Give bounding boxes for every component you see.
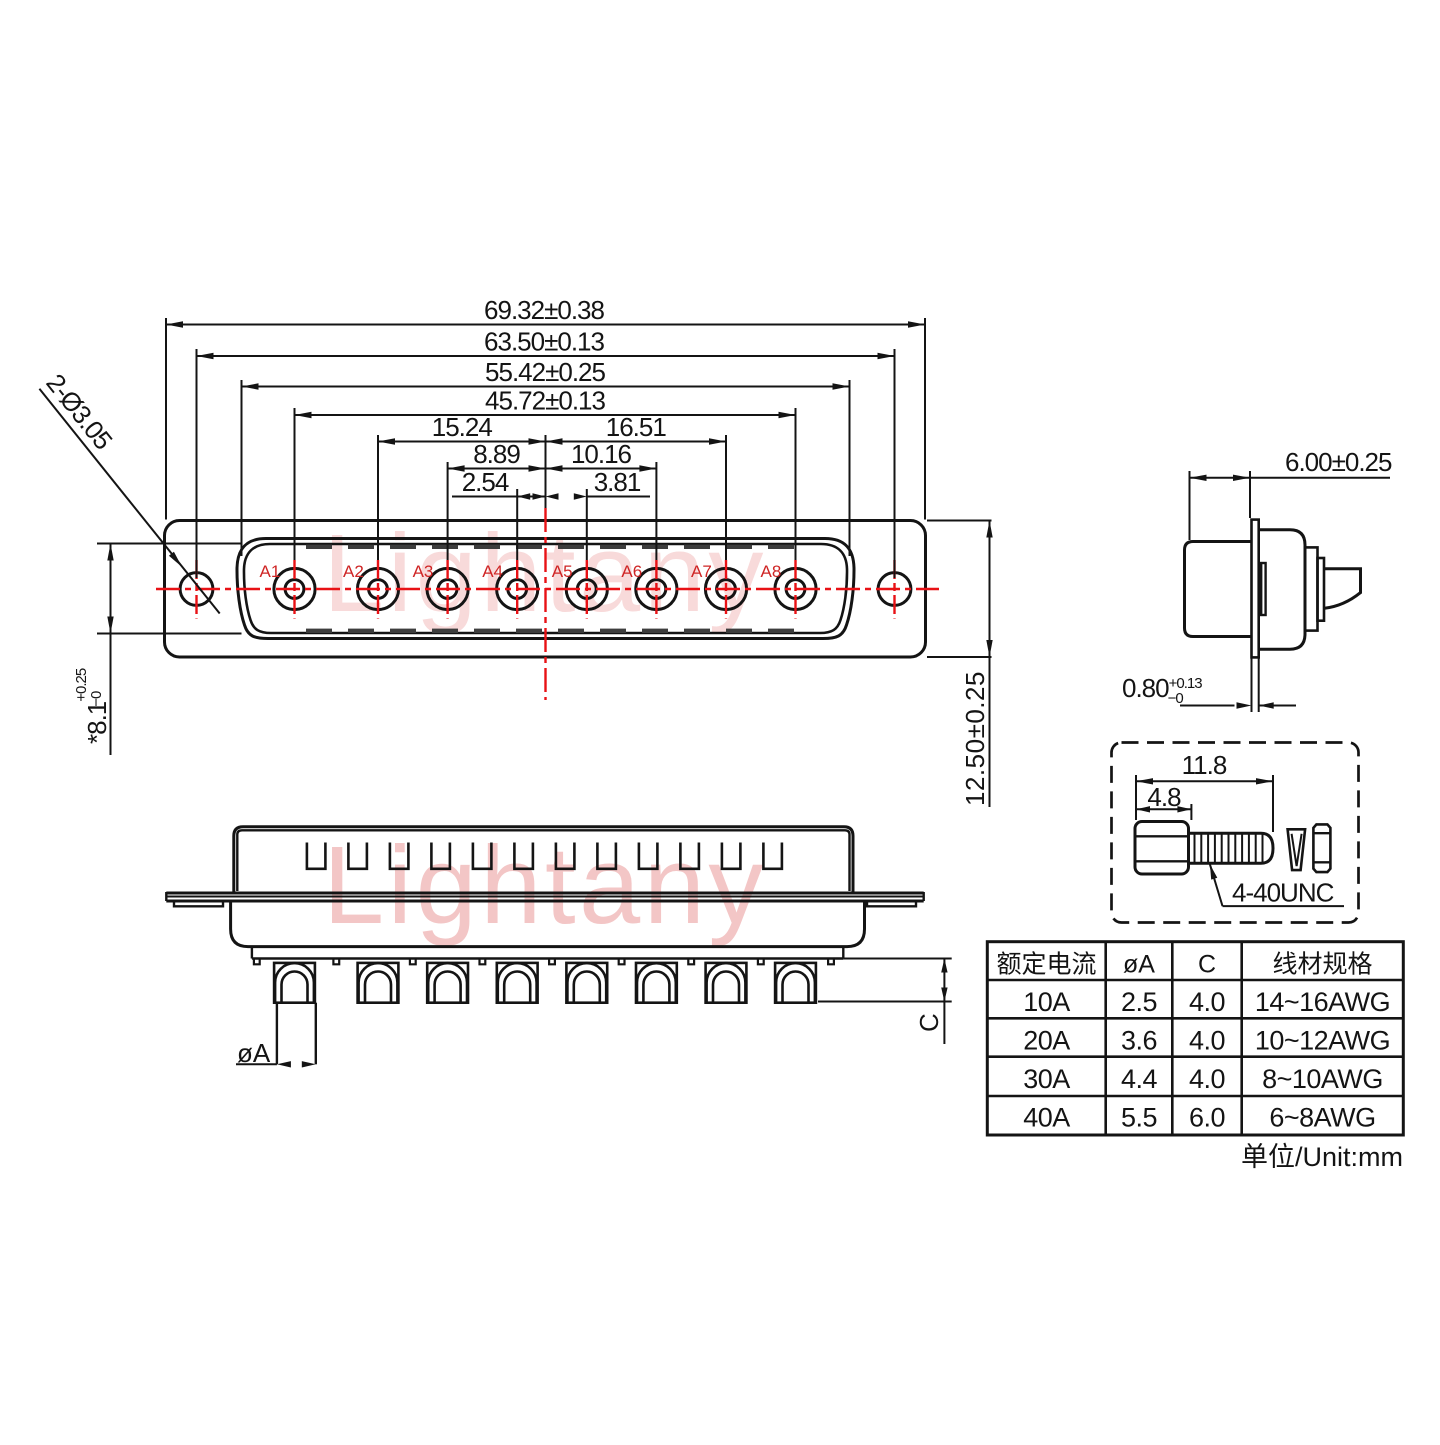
svg-text:4.0: 4.0 xyxy=(1189,987,1225,1017)
svg-text:A3: A3 xyxy=(413,562,434,581)
svg-text:12.50±0.25: 12.50±0.25 xyxy=(960,671,990,806)
svg-text:4.0: 4.0 xyxy=(1189,1064,1225,1094)
svg-text:4.8: 4.8 xyxy=(1147,782,1181,812)
svg-text:øA: øA xyxy=(237,1038,271,1068)
svg-text:6~8AWG: 6~8AWG xyxy=(1269,1103,1375,1133)
svg-text:8~10AWG: 8~10AWG xyxy=(1262,1064,1383,1094)
svg-text:30A: 30A xyxy=(1023,1064,1070,1094)
svg-text:A7: A7 xyxy=(691,562,712,581)
svg-text:3.6: 3.6 xyxy=(1121,1025,1157,1055)
svg-text:16.51: 16.51 xyxy=(606,412,667,442)
svg-text:A6: A6 xyxy=(621,562,642,581)
svg-text:63.50±0.13: 63.50±0.13 xyxy=(484,327,604,357)
svg-text:69.32±0.38: 69.32±0.38 xyxy=(484,295,604,325)
svg-text:2.54: 2.54 xyxy=(462,467,509,497)
svg-text:Lightany: Lightany xyxy=(323,824,767,947)
svg-text:额定电流: 额定电流 xyxy=(996,951,1096,979)
svg-text:4-40UNC: 4-40UNC xyxy=(1232,878,1334,908)
svg-text:A5: A5 xyxy=(552,562,573,581)
svg-text:A4: A4 xyxy=(482,562,503,581)
svg-text:3.81: 3.81 xyxy=(594,467,641,497)
svg-text:线材规格: 线材规格 xyxy=(1272,951,1372,979)
svg-text:5.5: 5.5 xyxy=(1121,1103,1157,1133)
svg-text:14~16AWG: 14~16AWG xyxy=(1255,987,1390,1017)
svg-text:40A: 40A xyxy=(1023,1103,1070,1133)
svg-text:10.16: 10.16 xyxy=(571,439,632,469)
svg-text:6.0: 6.0 xyxy=(1189,1103,1225,1133)
svg-text:øA: øA xyxy=(1123,951,1155,979)
svg-text:10~12AWG: 10~12AWG xyxy=(1255,1025,1390,1055)
svg-text:6.00±0.25: 6.00±0.25 xyxy=(1285,447,1392,477)
svg-text:4.4: 4.4 xyxy=(1121,1064,1158,1094)
svg-text:55.42±0.25: 55.42±0.25 xyxy=(485,357,605,387)
svg-text:8.89: 8.89 xyxy=(473,439,520,469)
svg-text:单位/Unit:mm: 单位/Unit:mm xyxy=(1241,1142,1403,1172)
svg-text:A8: A8 xyxy=(761,562,782,581)
svg-text:11.8: 11.8 xyxy=(1182,750,1227,780)
svg-text:10A: 10A xyxy=(1023,987,1070,1017)
svg-text:A1: A1 xyxy=(260,562,281,581)
svg-text:C: C xyxy=(1198,951,1216,979)
svg-text:4.0: 4.0 xyxy=(1189,1025,1225,1055)
svg-text:A2: A2 xyxy=(343,562,364,581)
svg-text:45.72±0.13: 45.72±0.13 xyxy=(485,386,605,416)
svg-text:20A: 20A xyxy=(1023,1025,1070,1055)
svg-text:C: C xyxy=(914,1013,944,1032)
svg-text:2.5: 2.5 xyxy=(1121,987,1157,1017)
svg-text:15.24: 15.24 xyxy=(432,412,493,442)
